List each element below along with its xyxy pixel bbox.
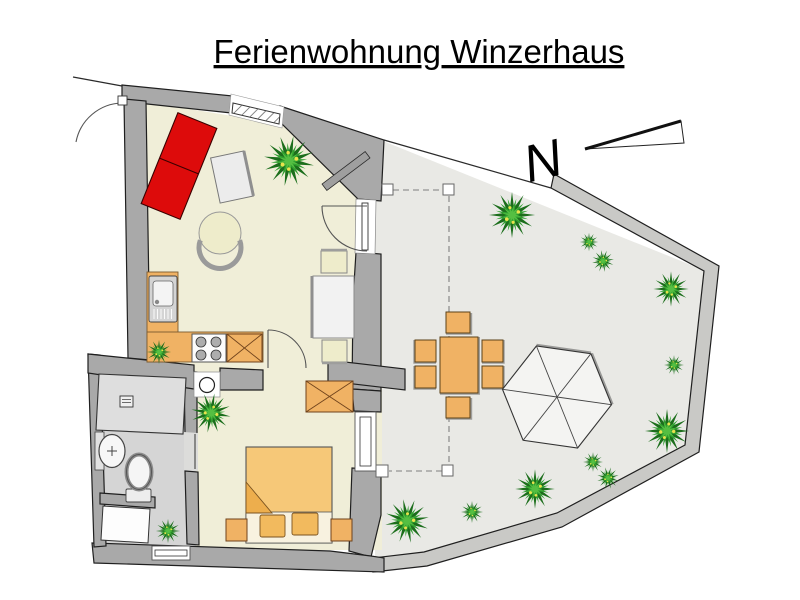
pillow: [292, 513, 318, 535]
terrace-chair: [446, 312, 471, 334]
wardrobe: [306, 381, 353, 412]
terrace-chair: [415, 340, 437, 363]
bathroom-door: [184, 432, 198, 471]
terrace-table: [440, 337, 478, 393]
nightstand: [331, 519, 352, 541]
wall-segment-west: [124, 99, 150, 360]
shower-tray: [101, 506, 150, 543]
double-bed: [246, 447, 332, 543]
wall-segment-kitchen-right: [220, 368, 263, 390]
kitchen-cabinet: [227, 334, 262, 362]
wall-segment-bath-divider-bottom: [185, 471, 199, 545]
terrace-chair: [482, 340, 504, 363]
wall-column: [194, 372, 220, 397]
toilet: [126, 455, 152, 503]
dining-chair: [321, 251, 347, 273]
terrace-chair: [415, 366, 437, 389]
pillow: [260, 515, 285, 537]
entry-door: [76, 96, 127, 142]
terrace-chair: [482, 366, 504, 389]
dining-chair: [322, 340, 347, 362]
terrace-chair: [446, 397, 471, 419]
bathroom-window: [152, 546, 190, 560]
washbasin: [95, 432, 125, 470]
floor-plan-canvas: N Ferienwohnung Winzerhaus: [0, 0, 800, 600]
north-label: N: [518, 129, 569, 194]
bedroom-window: [355, 412, 376, 471]
dining-table-white: [313, 276, 354, 338]
wall-segment-above-window: [352, 389, 381, 412]
nightstand: [226, 519, 247, 541]
kitchen-sink: [149, 276, 177, 322]
kitchen-stove: [192, 334, 226, 362]
page-title: Ferienwohnung Winzerhaus: [214, 33, 625, 70]
floor-plan-page: N Ferienwohnung Winzerhaus: [0, 0, 800, 600]
exterior-ground-line: [73, 77, 122, 86]
shower-area: [96, 374, 186, 434]
compass: N: [518, 121, 684, 194]
